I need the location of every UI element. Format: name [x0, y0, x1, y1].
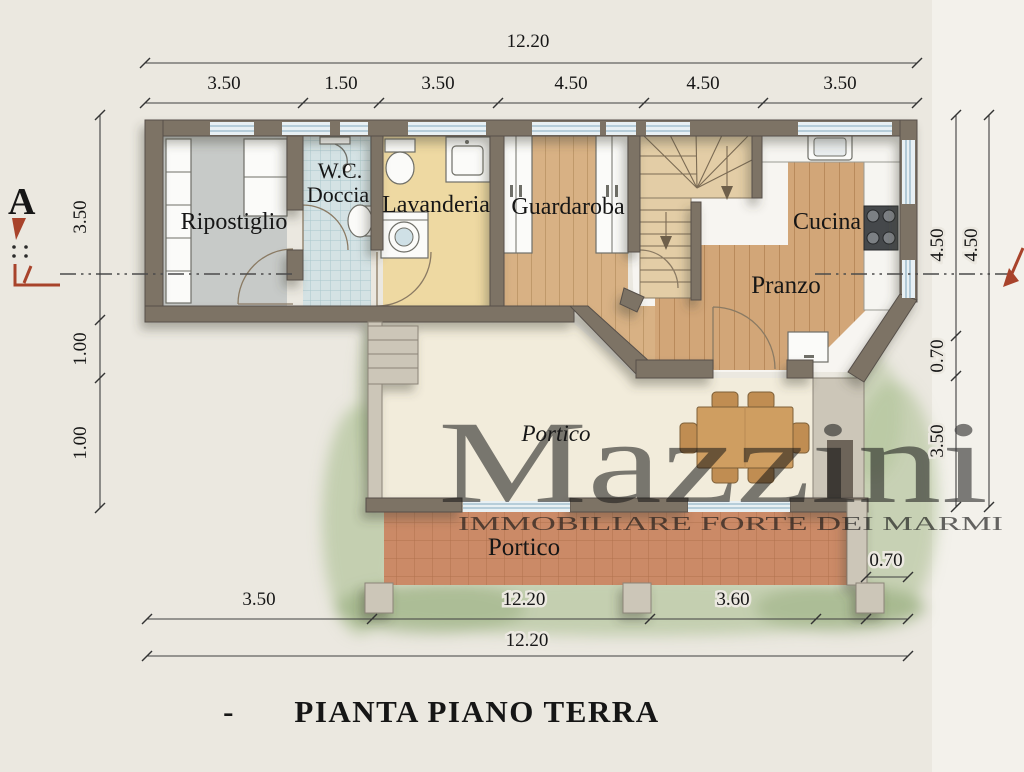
dim-left-seg-2: 1.00: [70, 332, 91, 365]
dim-bottom-total: 12.20: [506, 630, 549, 651]
watermark-subtitle: IMMOBILIARE FORTE DEI MARMI: [458, 513, 1003, 535]
label-portico-upper: Portico: [521, 421, 591, 446]
stair-banister-wall: [691, 202, 701, 300]
laundry-sink: [446, 137, 490, 182]
portico-pillar-2: [623, 583, 651, 613]
toilet: [385, 139, 415, 184]
section-marker-label: A: [8, 181, 36, 223]
paper-light-band: [932, 0, 1024, 772]
washing-machine: [381, 212, 428, 258]
dim-right-seg-2: 0.70: [927, 339, 948, 372]
dim-left-seg-1: 3.50: [70, 200, 91, 233]
dim-top-seg-1: 3.50: [207, 73, 240, 94]
watermark: Mazzini IMMOBILIARE FORTE DEI MARMI: [438, 397, 1003, 535]
portico-pillar-3: [856, 583, 884, 613]
label-pranzo: Pranzo: [751, 272, 820, 299]
cabinet: [788, 332, 828, 362]
floor-plan-page: Mazzini IMMOBILIARE FORTE DEI MARMI Ripo…: [0, 0, 1024, 772]
dim-right-seg-1: 4.50: [927, 228, 948, 261]
dim-bottom-seg-3: 3.60: [716, 589, 749, 610]
label-lavanderia: Lavanderia: [382, 192, 490, 218]
wall-south-2: [787, 360, 813, 378]
cooktop: [864, 206, 898, 250]
dim-right-seg-3: 3.50: [927, 424, 948, 457]
dim-top-seg-2: 1.50: [324, 73, 357, 94]
wall-stair-east: [752, 136, 762, 198]
floor-plan-canvas: Mazzini IMMOBILIARE FORTE DEI MARMI Ripo…: [0, 0, 1024, 772]
dim-right-outer: 4.50: [961, 228, 982, 261]
dim-bottom-seg-1: 3.50: [242, 589, 275, 610]
wall-rip-wc: [287, 136, 303, 210]
portico-pillar-1: [365, 583, 393, 613]
dim-top-seg-4: 4.50: [554, 73, 587, 94]
entry-steps: [368, 326, 418, 384]
wall-wing-south: [145, 306, 574, 322]
dim-bottom-offset: 0.70: [869, 550, 902, 571]
wall-guard-stair: [628, 136, 640, 252]
label-portico-lower: Portico: [488, 534, 560, 561]
dim-top-total: 12.20: [507, 31, 550, 52]
wall-rip-wc-stub: [287, 250, 303, 280]
wall-lav-guard: [490, 136, 504, 306]
wall-south-1: [636, 360, 713, 378]
label-wc-line1: W.C.: [318, 158, 362, 183]
title-dash: -: [223, 694, 235, 729]
dim-top-seg-6: 3.50: [823, 73, 856, 94]
wardrobe-right: [596, 132, 628, 253]
dim-top-seg-5: 4.50: [686, 73, 719, 94]
wall-west: [145, 120, 163, 322]
label-guardaroba: Guardaroba: [511, 194, 625, 220]
label-wc-line2: Doccia: [307, 182, 370, 207]
dim-bottom-seg-2: 12.20: [503, 589, 546, 610]
dim-left-seg-3: 1.00: [70, 426, 91, 459]
wardrobe-left: [500, 132, 532, 253]
watermark-name: Mazzini: [438, 397, 988, 528]
title-text: PIANTA PIANO TERRA: [294, 694, 659, 729]
label-ripostiglio: Ripostiglio: [181, 209, 288, 235]
label-cucina: Cucina: [793, 209, 861, 235]
dim-top-seg-3: 3.50: [421, 73, 454, 94]
